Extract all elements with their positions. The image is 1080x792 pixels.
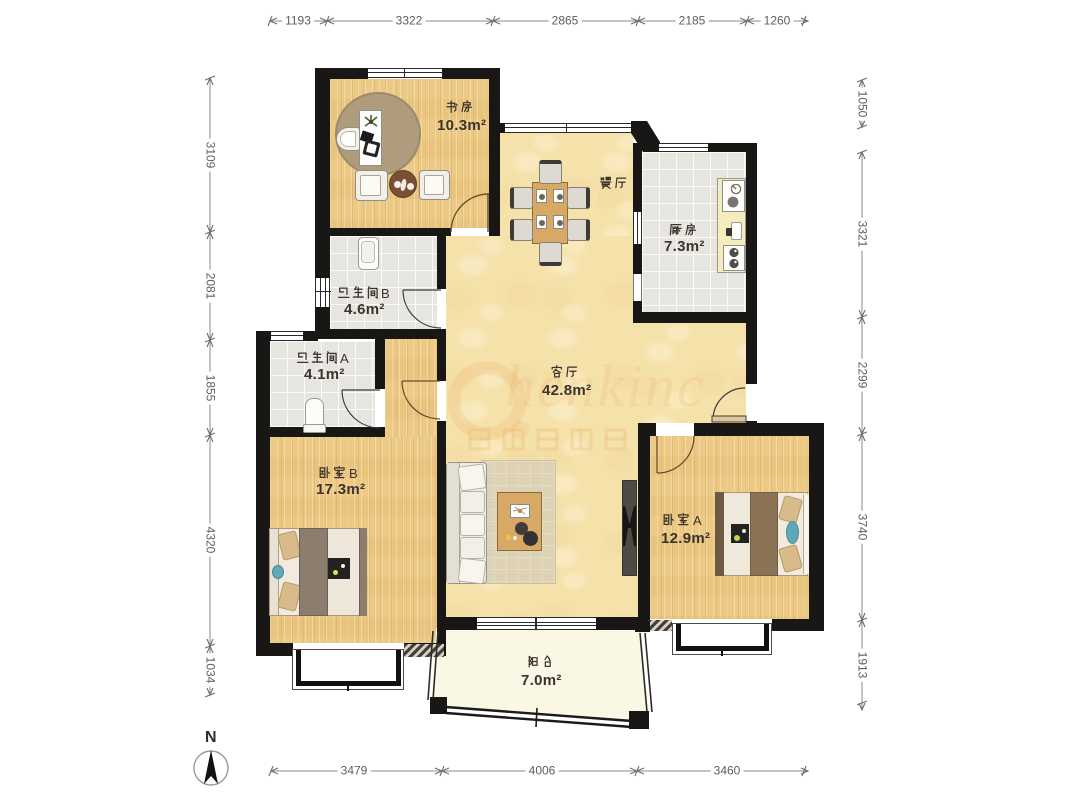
svg-text:B: B xyxy=(381,286,390,300)
svg-text:A: A xyxy=(693,513,702,527)
svg-text:B: B xyxy=(349,466,358,480)
svg-text:A: A xyxy=(340,351,349,365)
